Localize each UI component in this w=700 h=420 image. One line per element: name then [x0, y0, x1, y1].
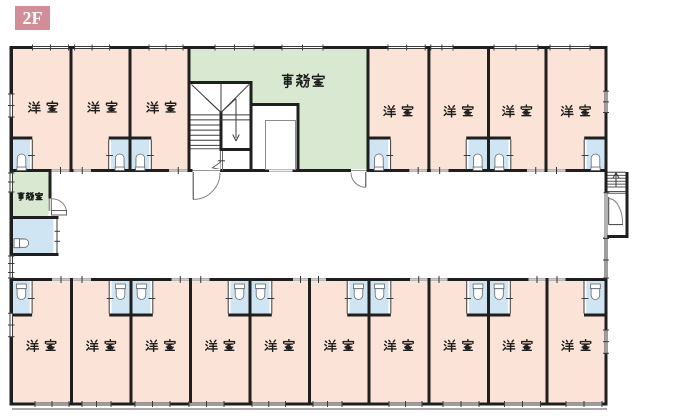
- svg-text:2F: 2F: [23, 8, 43, 28]
